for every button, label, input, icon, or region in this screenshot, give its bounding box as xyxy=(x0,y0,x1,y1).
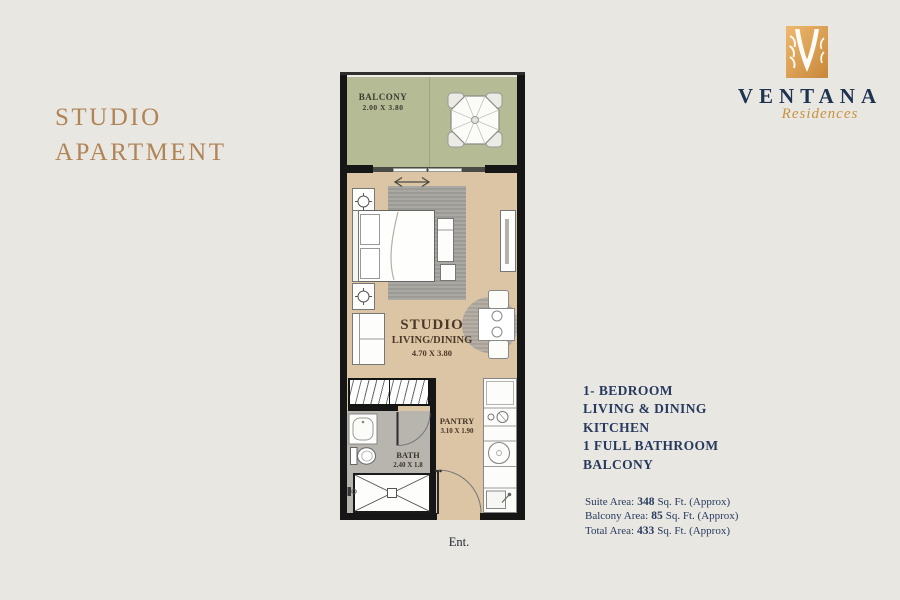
nightstand-bottom xyxy=(352,283,375,310)
balcony-dims: 2.00 X 3.80 xyxy=(351,103,415,112)
floor-plan: BALCONY 2.00 X 3.80 STUDIO LIVING/DINING… xyxy=(335,68,525,560)
bath-dims: 2.40 X 1.8 xyxy=(385,461,431,469)
feature-list: 1- BEDROOM LIVING & DINING KITCHEN 1 FUL… xyxy=(583,382,719,474)
wall-bottom-left xyxy=(340,513,437,520)
bath-pantry-wall xyxy=(430,378,436,513)
bath-label: BATH 2.40 X 1.8 xyxy=(385,450,431,469)
brand-logo xyxy=(786,26,828,78)
living-name2: LIVING/DINING xyxy=(380,335,484,346)
bath-name: BATH xyxy=(396,450,419,460)
area-value: 348 xyxy=(637,496,654,508)
pantry-name: PANTRY xyxy=(440,416,475,426)
area-value: 433 xyxy=(637,525,654,537)
balcony-name: BALCONY xyxy=(359,92,408,102)
area-summary: Suite Area:348Sq. Ft. (Approx) Balcony A… xyxy=(585,495,741,538)
balcony-floor xyxy=(347,77,517,167)
living-dims: 4.70 X 3.80 xyxy=(380,348,484,358)
area-value: 85 xyxy=(651,510,663,522)
divider-wall-left xyxy=(347,165,373,173)
area-label: Balcony Area: xyxy=(585,510,648,522)
tv-unit xyxy=(500,210,516,272)
sliding-door-panel xyxy=(393,168,427,172)
feature-item: BALCONY xyxy=(583,456,719,474)
feature-item: KITCHEN xyxy=(583,419,719,437)
bed-headboard xyxy=(352,210,359,282)
living-name1: STUDIO xyxy=(380,317,484,334)
ventana-v-emblem-icon xyxy=(786,26,828,78)
wall-left xyxy=(340,72,347,520)
bed-pillow xyxy=(360,214,380,245)
divider-wall-right xyxy=(485,165,517,173)
bed-pillow xyxy=(360,248,380,279)
kitchen-counter xyxy=(483,378,517,513)
entrance-label: Ent. xyxy=(437,535,481,550)
balcony-railing-inner xyxy=(347,75,517,77)
bench xyxy=(437,218,454,262)
brochure-page: STUDIO APARTMENT VENTANA Residences 1- B… xyxy=(0,0,900,600)
pantry-label: PANTRY 3.10 X 1.90 xyxy=(432,416,482,435)
pantry-dims: 3.10 X 1.90 xyxy=(432,427,482,435)
bath-top-wall xyxy=(348,406,398,411)
page-title-line1: STUDIO xyxy=(55,100,227,135)
wardrobe xyxy=(348,378,430,406)
wall-bottom-right xyxy=(480,513,525,520)
brand-subtitle: Residences xyxy=(740,106,900,123)
area-unit: Sq. Ft. (Approx) xyxy=(657,525,730,537)
balcony-seam xyxy=(429,77,430,167)
ottoman xyxy=(440,264,456,281)
dining-chair-bottom xyxy=(488,340,509,359)
page-title-line2: APARTMENT xyxy=(55,135,227,170)
page-title: STUDIO APARTMENT xyxy=(55,100,227,170)
area-row: Suite Area:348Sq. Ft. (Approx) xyxy=(585,495,741,509)
area-row: Total Area:433Sq. Ft. (Approx) xyxy=(585,524,741,538)
living-label: STUDIO LIVING/DINING 4.70 X 3.80 xyxy=(380,317,484,358)
balcony-label: BALCONY 2.00 X 3.80 xyxy=(351,92,415,112)
area-unit: Sq. Ft. (Approx) xyxy=(657,496,730,508)
area-unit: Sq. Ft. (Approx) xyxy=(666,510,739,522)
sliding-door-panel xyxy=(428,168,462,172)
area-label: Suite Area: xyxy=(585,496,634,508)
wall-right xyxy=(517,72,525,520)
area-label: Total Area: xyxy=(585,525,634,537)
area-row: Balcony Area:85Sq. Ft. (Approx) xyxy=(585,509,741,523)
feature-item: 1 FULL BATHROOM xyxy=(583,437,719,455)
dining-chair-top xyxy=(488,290,509,309)
feature-item: LIVING & DINING xyxy=(583,400,719,418)
feature-item: 1- BEDROOM xyxy=(583,382,719,400)
